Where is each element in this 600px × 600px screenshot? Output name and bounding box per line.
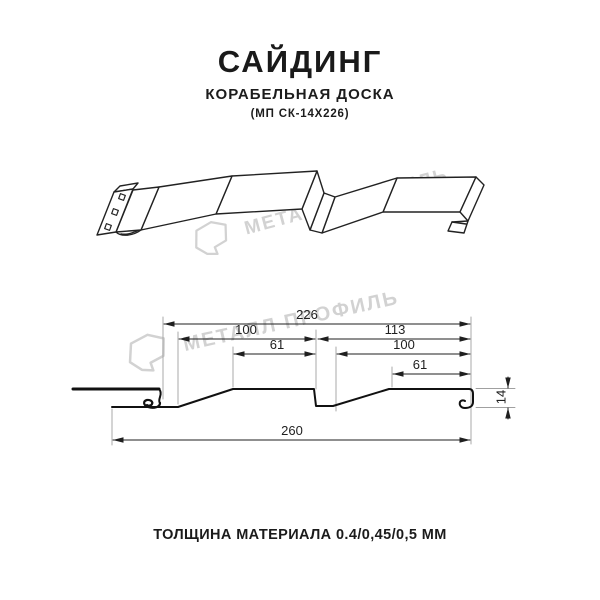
dim-label-226: 226 [296, 308, 318, 321]
profile-outline [73, 389, 473, 408]
extension-lines [112, 317, 515, 445]
nail-hole [105, 224, 112, 231]
thickness-note: ТОЛЩИНА МАТЕРИАЛА 0.4/0,45/0,5 ММ [0, 527, 600, 543]
nail-hole [119, 194, 126, 201]
dim-label-61-left: 61 [270, 338, 284, 351]
dim-label-61-right: 61 [413, 358, 427, 371]
profile-main-line [112, 389, 469, 407]
dim-label-260: 260 [281, 424, 303, 437]
panel-slope-face-left [141, 176, 232, 230]
profile-lock-drop [159, 389, 161, 403]
panel-slope-face-right [322, 178, 397, 233]
profile-3d-view [97, 171, 484, 235]
nail-hole [112, 209, 119, 216]
dim-label-100-left: 100 [235, 323, 257, 336]
dim-label-100-right: 100 [393, 338, 415, 351]
dim-label-113: 113 [385, 323, 406, 336]
technical-drawing-canvas [0, 0, 600, 600]
dimension-lines [113, 324, 508, 440]
dim-label-14: 14 [495, 390, 508, 404]
